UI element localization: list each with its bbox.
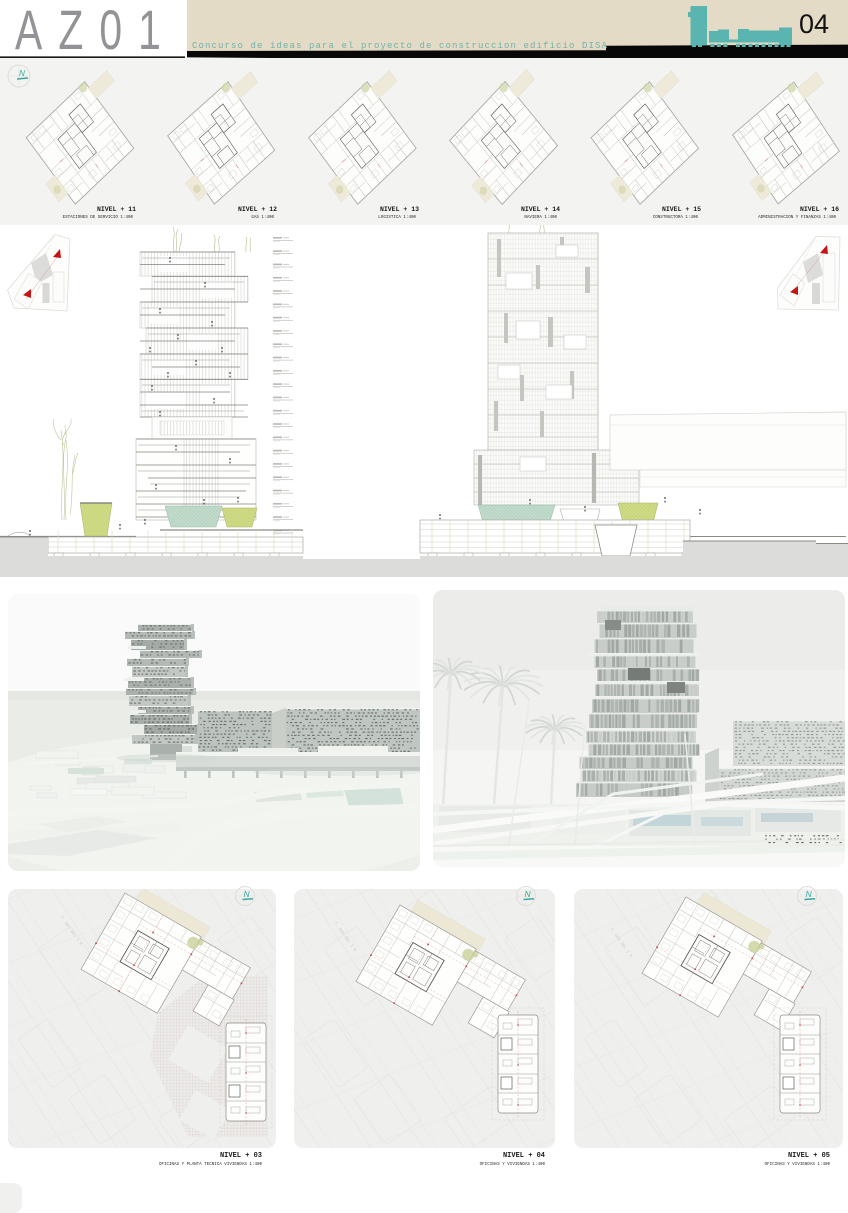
svg-text:N: N [19,69,25,78]
